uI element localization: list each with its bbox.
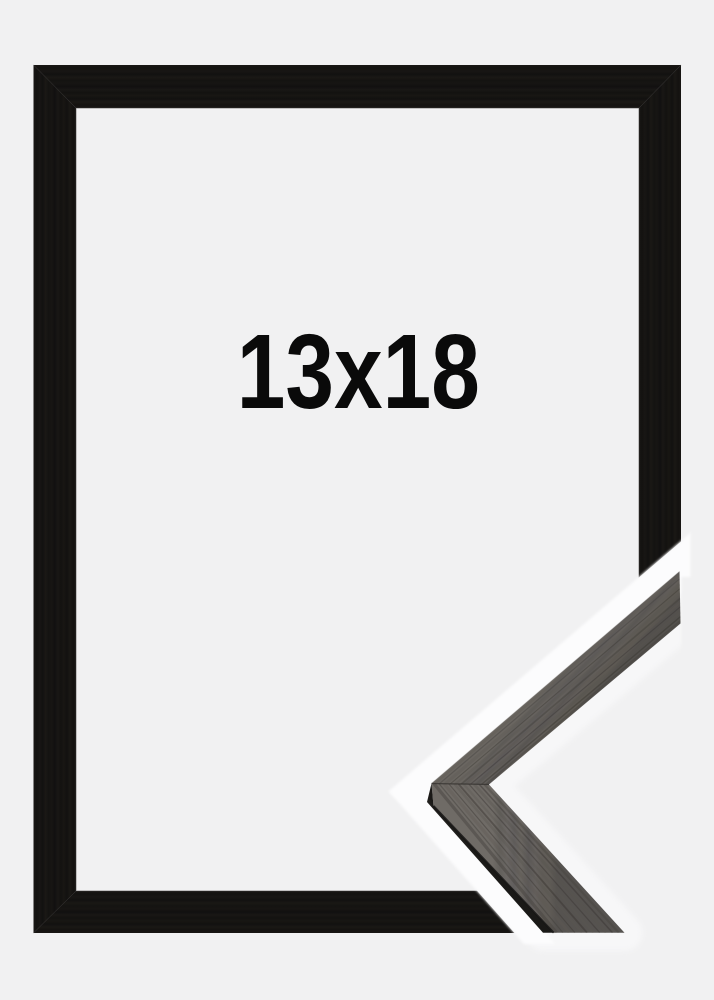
svg-text:13x18: 13x18 [237,313,480,431]
